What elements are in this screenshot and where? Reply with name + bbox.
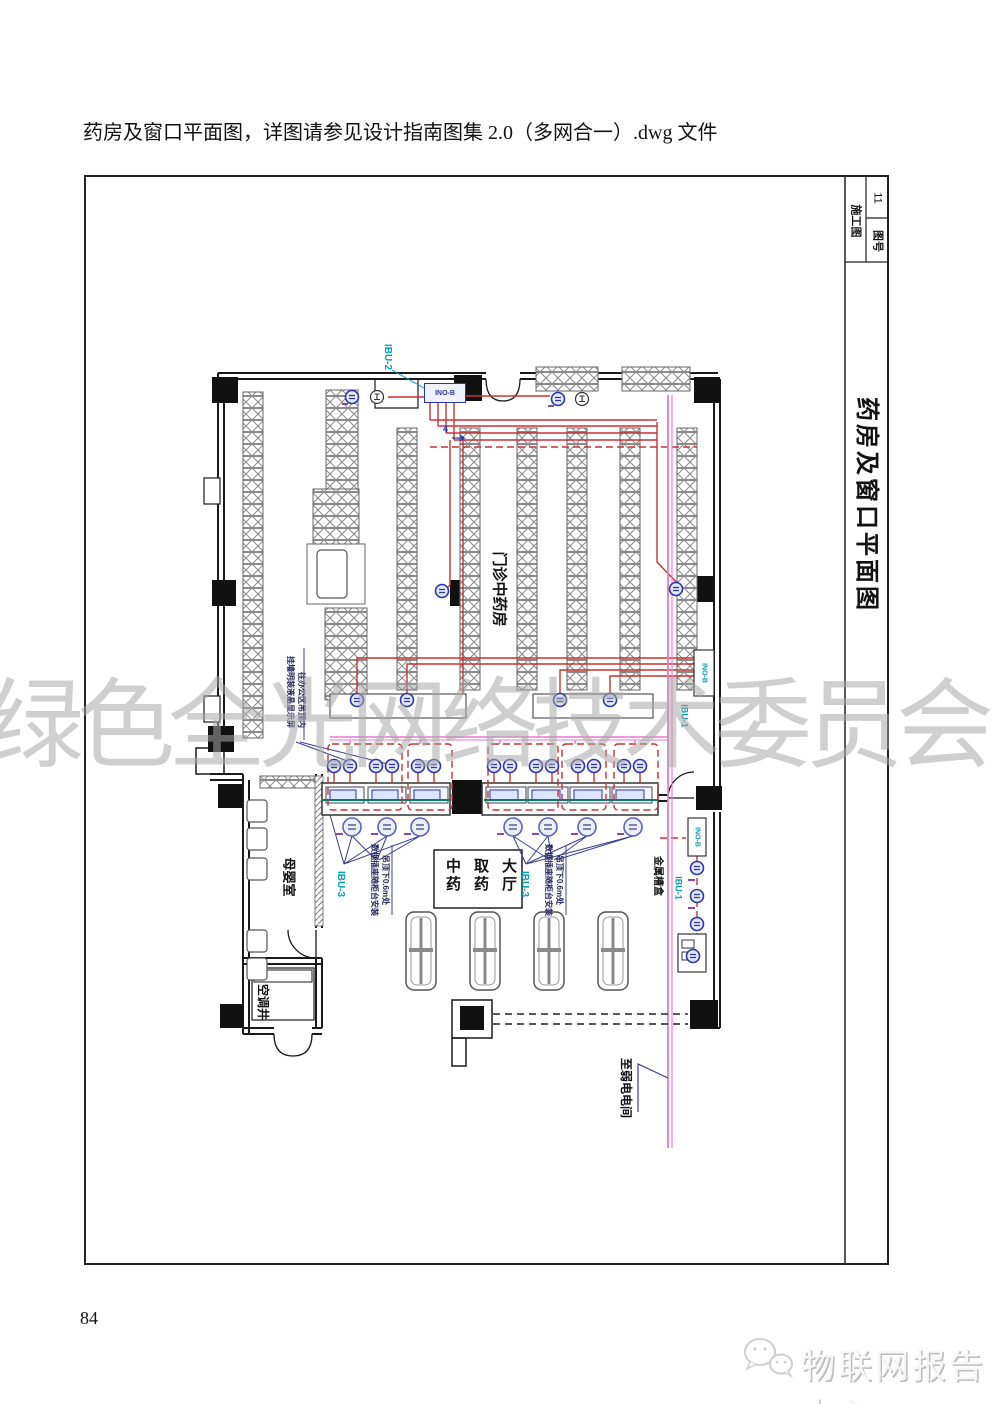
title-block-drawing-title: 药房及窗口平面图 xyxy=(854,397,878,613)
wall-display-note-line1: 挂墙明装液晶显示屏 xyxy=(286,656,294,728)
walls xyxy=(196,373,720,1066)
room-label-pharmacy: 门诊中药房 xyxy=(492,551,507,626)
label-ibu1-b: IBU-1 xyxy=(674,876,683,900)
title-block-stage: 施工图 xyxy=(850,205,861,238)
counter-note-b-line1: 数据插座随柜台安装 xyxy=(544,844,552,916)
wall-display-note-line2: 往办公区吊顶内 xyxy=(297,672,305,728)
counter-note-a-line2: 吊顶下0.6m处 xyxy=(381,855,389,905)
title-block-sheet-number: 11 xyxy=(872,192,883,203)
label-cable-tray: 金属槽盒 xyxy=(652,856,662,896)
shelving-racks xyxy=(243,367,697,926)
ino-b-box-low-label: INO-B xyxy=(694,827,701,847)
label-ibu2: IBU-2 xyxy=(382,344,392,370)
label-ibu3-a: IBU-3 xyxy=(335,871,345,897)
room-label-hall-col3: 大厅 xyxy=(498,858,519,894)
page-number: 84 xyxy=(80,1308,98,1329)
ino-b-box-mid-label: INO-B xyxy=(701,663,708,683)
counter-note-b-line2: 吊顶下0.6m处 xyxy=(555,855,563,905)
wechat-bubbles-icon xyxy=(742,1336,798,1380)
room-label-hall-col2: 取药 xyxy=(470,858,491,894)
room-label-nursing: 母婴室 xyxy=(283,857,296,896)
room-label-ac-shaft: 空调井 xyxy=(257,984,269,1020)
label-to-weak-room: 至弱电电间 xyxy=(620,1058,632,1118)
waiting-benches xyxy=(406,912,628,990)
label-ibu1-a: IBU-1 xyxy=(680,704,689,728)
room-label-hall-col1: 中药 xyxy=(442,858,463,894)
footer-brand-text: 物联网报告中心 xyxy=(801,1339,1000,1404)
service-counters xyxy=(322,783,658,815)
riser-count: 4 xyxy=(443,424,448,434)
title-block-sheet-label: 图号 xyxy=(872,230,883,252)
document-page: 药房及窗口平面图，详图请参见设计指南图集 2.0（多网合一）.dwg 文件 xyxy=(0,0,1000,1404)
label-ibu3-b: IBU-3 xyxy=(519,871,529,897)
floor-box-links xyxy=(493,1014,688,1024)
counter-note-a-line1: 数据插座随柜台安装 xyxy=(370,844,378,916)
ino-b-box-top: INO-B xyxy=(424,383,466,403)
